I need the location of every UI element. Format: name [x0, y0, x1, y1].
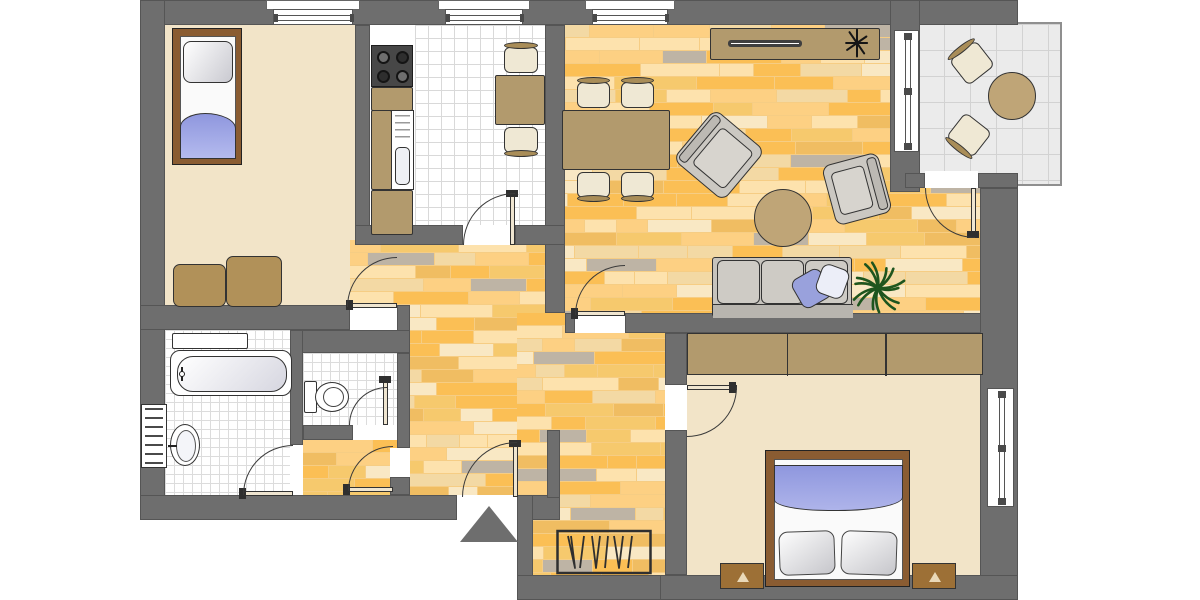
- wc-door-handle: [379, 376, 391, 383]
- living-room-window: [592, 9, 668, 25]
- window-cap: [665, 14, 669, 22]
- pillow: [183, 41, 233, 83]
- window-cap: [904, 88, 912, 95]
- radiator-fins: [145, 408, 163, 464]
- kitchen-sink: [391, 110, 414, 190]
- chair-seat: [504, 47, 538, 73]
- wall: [515, 225, 565, 245]
- dining-chair: [619, 79, 656, 111]
- kitchen-table: [495, 75, 545, 125]
- wall: [905, 173, 925, 188]
- doorway-opening: [575, 313, 625, 333]
- doorway-opening: [350, 305, 397, 330]
- coffee-table: [754, 189, 812, 247]
- wall: [140, 305, 350, 330]
- bench-cushion: [226, 256, 282, 307]
- wall: [665, 333, 687, 385]
- wall: [665, 430, 687, 575]
- wall: [140, 495, 457, 520]
- nightstand: [912, 563, 956, 589]
- blanket: [774, 465, 903, 511]
- wall: [397, 353, 410, 448]
- faucet-dot: [179, 371, 185, 377]
- basin-inner: [176, 430, 196, 462]
- bedroom1-window: [273, 9, 353, 25]
- window-cap: [904, 143, 912, 150]
- lamp-marker: [737, 572, 749, 582]
- wardrobe-divider: [787, 334, 789, 376]
- wardrobe: [687, 333, 983, 375]
- bathroom-shelf: [172, 333, 248, 349]
- wall: [303, 425, 353, 440]
- kitchen-cabinet: [371, 87, 413, 111]
- dining-chair: [619, 169, 656, 201]
- balcony-table: [988, 72, 1036, 120]
- lamp-marker: [929, 572, 941, 582]
- chair-seat: [577, 82, 610, 108]
- window-cap: [274, 14, 278, 22]
- wardrobe-divider: [885, 334, 887, 376]
- palm-plant: [850, 260, 906, 316]
- chair-back: [621, 77, 654, 84]
- doorway-opening: [665, 385, 687, 430]
- toilet: [304, 381, 350, 413]
- clothes-rail: [556, 528, 652, 576]
- tub-inner: [177, 356, 287, 392]
- single-bed: [172, 28, 242, 165]
- groove-line: [731, 43, 799, 45]
- entrance-marker: [460, 506, 518, 542]
- bathtub: [170, 350, 292, 396]
- wall: [390, 477, 410, 495]
- bedroom2-window: [987, 388, 1014, 507]
- chair-back: [577, 195, 610, 202]
- window-cap: [904, 33, 912, 40]
- kitchen-window: [445, 9, 523, 25]
- washbasin: [170, 424, 200, 466]
- pillow: [778, 530, 836, 576]
- sofa-cushion: [717, 260, 760, 304]
- burner: [377, 70, 390, 83]
- window-cap: [998, 498, 1006, 505]
- decor-plant: [842, 28, 872, 58]
- floor-plan: [0, 0, 1200, 600]
- bench-cushion: [173, 264, 226, 307]
- kitchen-chair: [502, 124, 540, 156]
- kitchen-cabinet: [371, 190, 413, 235]
- dining-table: [562, 110, 670, 170]
- wall: [547, 430, 560, 498]
- chair-back: [504, 42, 538, 49]
- window-cap: [350, 14, 354, 22]
- sideboard-groove: [728, 40, 802, 47]
- wall: [355, 25, 370, 245]
- chair-back: [577, 77, 610, 84]
- wall: [978, 173, 1018, 188]
- stove: [371, 45, 413, 87]
- radiator: [141, 404, 167, 468]
- bowl-inner: [323, 387, 344, 407]
- window-pane: [449, 15, 521, 21]
- chair-back: [621, 195, 654, 202]
- double-bed: [765, 450, 910, 587]
- faucet: [168, 445, 177, 447]
- blanket: [180, 113, 236, 159]
- sofa-backrest: [713, 304, 853, 318]
- dining-chair: [575, 79, 612, 111]
- window-cap: [593, 14, 597, 22]
- balcony-window: [894, 30, 919, 152]
- wall: [290, 330, 303, 445]
- kitchen-chair: [502, 44, 540, 76]
- burner: [396, 70, 409, 83]
- basin: [395, 147, 410, 185]
- pillow: [840, 530, 898, 576]
- window-pane: [277, 15, 351, 21]
- window-cap: [520, 14, 524, 22]
- dining-chair: [575, 169, 612, 201]
- window-pane: [596, 15, 666, 21]
- nightstand: [720, 563, 764, 589]
- doorway-opening: [353, 425, 397, 440]
- wall: [290, 330, 410, 353]
- window-cap: [446, 14, 450, 22]
- burner: [396, 51, 409, 64]
- doorway-opening: [390, 448, 410, 477]
- kitchen-cabinet: [371, 110, 392, 190]
- window-cap: [998, 391, 1006, 398]
- drainer: [395, 115, 410, 143]
- chair-back: [504, 150, 538, 157]
- chair-seat: [621, 82, 654, 108]
- window-cap: [998, 445, 1006, 452]
- burner: [377, 51, 390, 64]
- doorway-opening: [925, 171, 978, 188]
